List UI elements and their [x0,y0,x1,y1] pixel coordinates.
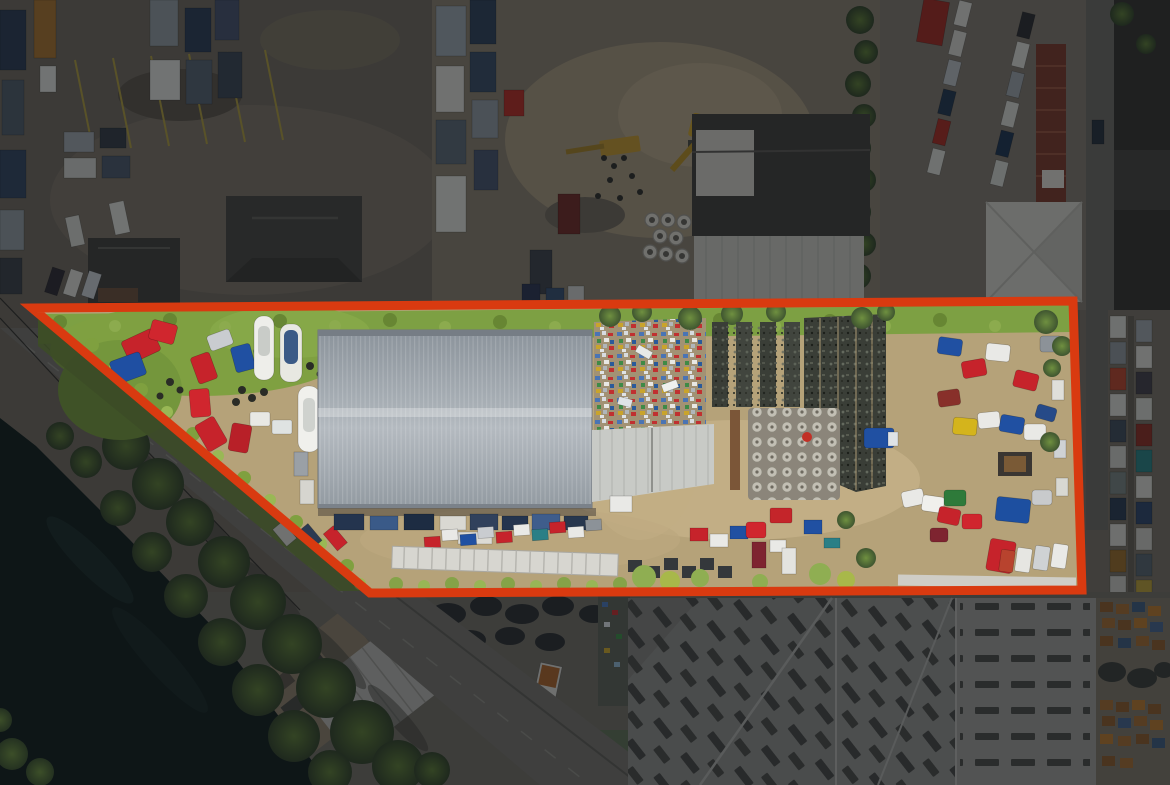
dark-trailer [998,452,1032,476]
aerial-photo [0,0,1170,785]
scrap-metal-field [594,318,706,430]
wheel-pallet-cluster [748,408,840,500]
steel-rack [730,410,740,490]
aerial-scene [0,0,1170,785]
